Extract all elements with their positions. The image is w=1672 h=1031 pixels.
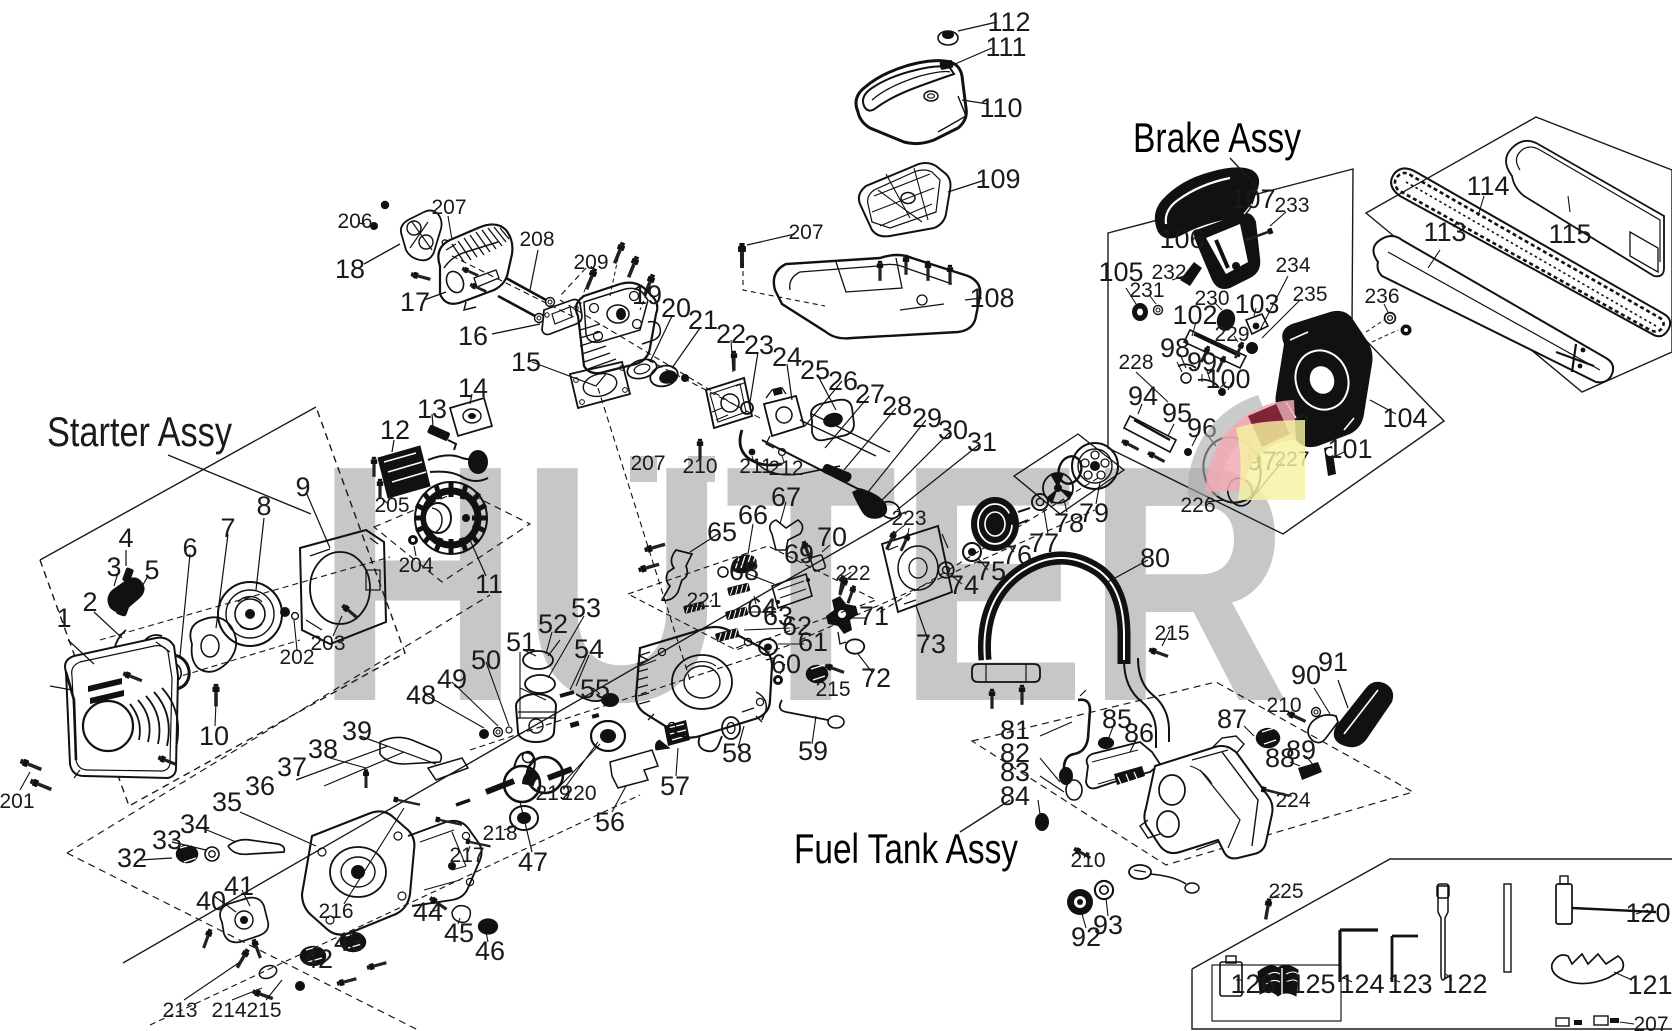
svg-text:50: 50 bbox=[471, 645, 501, 675]
svg-text:209: 209 bbox=[573, 251, 608, 274]
svg-text:33: 33 bbox=[152, 825, 182, 855]
svg-text:19: 19 bbox=[632, 280, 662, 310]
svg-text:21: 21 bbox=[688, 305, 718, 335]
svg-text:87: 87 bbox=[1217, 704, 1247, 734]
svg-text:59: 59 bbox=[798, 736, 828, 766]
svg-text:22: 22 bbox=[716, 319, 746, 349]
svg-text:125: 125 bbox=[1290, 969, 1335, 999]
svg-text:207: 207 bbox=[630, 452, 665, 475]
svg-text:100: 100 bbox=[1205, 364, 1250, 394]
svg-text:215: 215 bbox=[246, 999, 281, 1022]
svg-text:212: 212 bbox=[768, 457, 803, 480]
svg-text:13: 13 bbox=[417, 394, 447, 424]
svg-text:8: 8 bbox=[256, 491, 271, 521]
svg-text:42: 42 bbox=[303, 944, 333, 974]
svg-text:49: 49 bbox=[437, 664, 467, 694]
svg-text:91: 91 bbox=[1318, 647, 1348, 677]
svg-text:210: 210 bbox=[682, 455, 717, 478]
svg-text:126: 126 bbox=[1230, 969, 1275, 999]
svg-text:10: 10 bbox=[199, 721, 229, 751]
svg-text:207: 207 bbox=[431, 196, 466, 219]
svg-text:205: 205 bbox=[374, 494, 409, 517]
svg-text:79: 79 bbox=[1079, 498, 1109, 528]
svg-text:206: 206 bbox=[337, 210, 372, 233]
svg-text:36: 36 bbox=[245, 771, 275, 801]
svg-text:16: 16 bbox=[458, 321, 488, 351]
svg-text:31: 31 bbox=[967, 427, 997, 457]
svg-text:221: 221 bbox=[686, 589, 721, 612]
svg-text:70: 70 bbox=[817, 522, 847, 552]
svg-text:210: 210 bbox=[1266, 694, 1301, 717]
svg-text:107: 107 bbox=[1230, 184, 1275, 214]
svg-text:66: 66 bbox=[738, 500, 768, 530]
svg-text:208: 208 bbox=[519, 228, 554, 251]
svg-text:30: 30 bbox=[938, 415, 968, 445]
svg-text:226: 226 bbox=[1180, 494, 1215, 517]
svg-text:6: 6 bbox=[182, 533, 197, 563]
svg-text:214: 214 bbox=[211, 999, 246, 1022]
svg-text:112: 112 bbox=[987, 7, 1030, 37]
svg-text:45: 45 bbox=[444, 918, 474, 948]
svg-text:54: 54 bbox=[574, 634, 604, 664]
svg-text:46: 46 bbox=[475, 936, 505, 966]
svg-text:94: 94 bbox=[1128, 381, 1158, 411]
svg-text:12: 12 bbox=[380, 415, 410, 445]
svg-text:55: 55 bbox=[580, 674, 610, 704]
svg-text:235: 235 bbox=[1292, 283, 1327, 306]
svg-text:122: 122 bbox=[1442, 969, 1487, 999]
svg-text:124: 124 bbox=[1339, 969, 1384, 999]
svg-text:43: 43 bbox=[334, 927, 364, 957]
svg-text:14: 14 bbox=[458, 373, 488, 403]
svg-text:98: 98 bbox=[1160, 333, 1190, 363]
svg-text:64: 64 bbox=[747, 593, 777, 623]
svg-text:44: 44 bbox=[413, 897, 443, 927]
svg-text:69: 69 bbox=[784, 539, 814, 569]
svg-text:56: 56 bbox=[595, 807, 625, 837]
svg-text:15: 15 bbox=[511, 347, 541, 377]
svg-text:109: 109 bbox=[975, 164, 1020, 194]
svg-text:223: 223 bbox=[891, 507, 926, 530]
svg-text:Fuel Tank Assy: Fuel Tank Assy bbox=[794, 825, 1018, 872]
svg-text:106: 106 bbox=[1159, 224, 1204, 254]
svg-text:76: 76 bbox=[1002, 540, 1032, 570]
svg-text:48: 48 bbox=[406, 680, 436, 710]
svg-text:60: 60 bbox=[771, 649, 801, 679]
svg-text:216: 216 bbox=[318, 900, 353, 923]
svg-text:4: 4 bbox=[118, 523, 133, 553]
svg-text:215: 215 bbox=[1154, 622, 1189, 645]
svg-text:203: 203 bbox=[310, 632, 345, 655]
svg-text:24: 24 bbox=[772, 342, 802, 372]
svg-text:20: 20 bbox=[661, 293, 691, 323]
svg-text:32: 32 bbox=[117, 843, 147, 873]
svg-text:215: 215 bbox=[815, 678, 850, 701]
svg-text:80: 80 bbox=[1140, 543, 1170, 573]
svg-text:220: 220 bbox=[561, 782, 596, 805]
svg-text:2: 2 bbox=[82, 587, 97, 617]
svg-text:65: 65 bbox=[707, 517, 737, 547]
svg-text:68: 68 bbox=[729, 556, 759, 586]
svg-text:34: 34 bbox=[180, 809, 210, 839]
svg-text:35: 35 bbox=[212, 787, 242, 817]
svg-text:210: 210 bbox=[1070, 849, 1105, 872]
svg-text:229: 229 bbox=[1214, 323, 1249, 346]
svg-text:40: 40 bbox=[196, 886, 226, 916]
svg-text:51: 51 bbox=[506, 627, 536, 657]
svg-text:213: 213 bbox=[162, 999, 197, 1022]
svg-text:53: 53 bbox=[571, 593, 601, 623]
svg-text:207: 207 bbox=[1633, 1013, 1668, 1031]
svg-text:93: 93 bbox=[1093, 910, 1123, 940]
svg-text:222: 222 bbox=[835, 562, 870, 585]
svg-text:202: 202 bbox=[279, 646, 314, 669]
svg-text:236: 236 bbox=[1364, 285, 1399, 308]
svg-text:121: 121 bbox=[1627, 970, 1672, 1000]
svg-text:74: 74 bbox=[949, 570, 979, 600]
svg-text:9: 9 bbox=[295, 472, 310, 502]
svg-text:123: 123 bbox=[1387, 969, 1432, 999]
svg-text:23: 23 bbox=[744, 330, 774, 360]
svg-text:37: 37 bbox=[277, 752, 307, 782]
svg-text:110: 110 bbox=[979, 93, 1022, 123]
svg-text:41: 41 bbox=[224, 871, 254, 901]
svg-text:27: 27 bbox=[855, 379, 885, 409]
svg-text:84: 84 bbox=[1000, 781, 1030, 811]
svg-text:108: 108 bbox=[969, 283, 1014, 313]
svg-text:25: 25 bbox=[800, 355, 830, 385]
svg-text:86: 86 bbox=[1124, 718, 1154, 748]
svg-text:52: 52 bbox=[538, 609, 568, 639]
svg-text:1: 1 bbox=[56, 603, 71, 633]
svg-text:18: 18 bbox=[335, 254, 365, 284]
svg-text:101: 101 bbox=[1327, 434, 1372, 464]
svg-text:58: 58 bbox=[722, 738, 752, 768]
svg-text:72: 72 bbox=[861, 663, 891, 693]
svg-text:233: 233 bbox=[1274, 194, 1309, 217]
svg-text:201: 201 bbox=[0, 790, 35, 813]
svg-text:73: 73 bbox=[916, 629, 946, 659]
svg-text:28: 28 bbox=[882, 391, 912, 421]
svg-text:104: 104 bbox=[1382, 403, 1427, 433]
svg-text:230: 230 bbox=[1194, 287, 1229, 310]
svg-text:204: 204 bbox=[398, 554, 433, 577]
svg-text:218: 218 bbox=[482, 822, 517, 845]
svg-text:11: 11 bbox=[475, 569, 503, 599]
svg-text:207: 207 bbox=[788, 221, 823, 244]
svg-text:47: 47 bbox=[518, 847, 548, 877]
svg-text:114: 114 bbox=[1466, 171, 1509, 201]
svg-text:232: 232 bbox=[1151, 261, 1186, 284]
svg-text:5: 5 bbox=[144, 555, 159, 585]
svg-text:7: 7 bbox=[220, 513, 235, 543]
svg-text:89: 89 bbox=[1286, 735, 1316, 765]
svg-text:17: 17 bbox=[400, 287, 430, 317]
svg-text:67: 67 bbox=[771, 482, 801, 512]
svg-text:103: 103 bbox=[1234, 289, 1279, 319]
svg-text:217: 217 bbox=[449, 844, 484, 867]
svg-text:113: 113 bbox=[1423, 217, 1466, 247]
svg-text:224: 224 bbox=[1275, 789, 1310, 812]
svg-text:115: 115 bbox=[1548, 219, 1591, 249]
svg-text:39: 39 bbox=[342, 716, 372, 746]
svg-text:234: 234 bbox=[1275, 254, 1310, 277]
svg-text:Brake Assy: Brake Assy bbox=[1133, 114, 1301, 161]
svg-text:Starter Assy: Starter Assy bbox=[47, 408, 232, 455]
svg-text:57: 57 bbox=[660, 771, 690, 801]
svg-text:3: 3 bbox=[106, 552, 121, 582]
svg-text:225: 225 bbox=[1268, 880, 1303, 903]
svg-text:71: 71 bbox=[859, 601, 889, 631]
svg-text:120: 120 bbox=[1625, 898, 1670, 928]
svg-text:90: 90 bbox=[1291, 660, 1321, 690]
svg-text:228: 228 bbox=[1118, 351, 1153, 374]
svg-text:38: 38 bbox=[308, 734, 338, 764]
svg-text:26: 26 bbox=[828, 366, 858, 396]
